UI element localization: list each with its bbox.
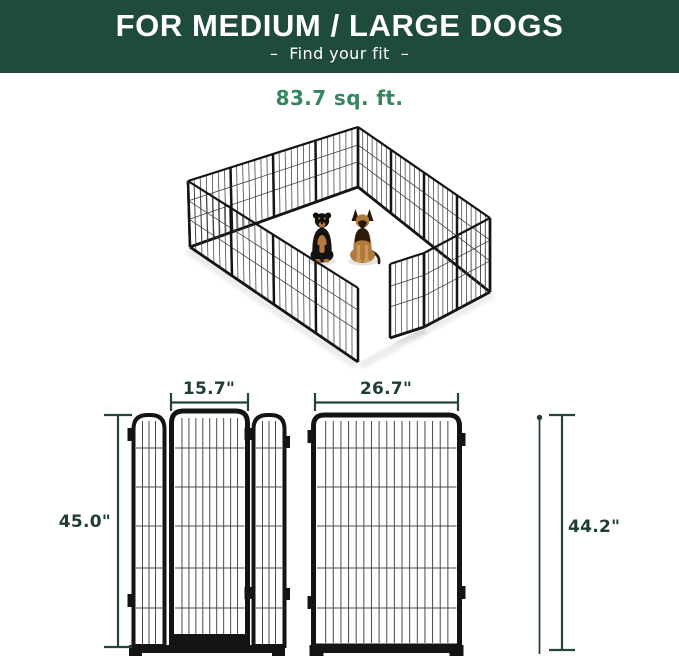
ground-stake-illustration	[537, 415, 542, 654]
regular-panel-height-label: 44.2"	[568, 519, 620, 536]
headline: FOR MEDIUM / LARGE DOGS	[116, 10, 564, 43]
subheadline: – Find your fit –	[270, 44, 409, 63]
area-size-label: 83.7 sq. ft.	[0, 86, 679, 110]
door-panel-height-label: 45.0"	[59, 514, 111, 531]
playpen-isometric-illustration	[140, 115, 540, 380]
door-panel-diagram	[128, 411, 291, 656]
regular-panel-width-label: 26.7"	[360, 381, 412, 398]
door-width-label: 15.7"	[183, 381, 235, 398]
regular-panel-diagram	[308, 415, 466, 656]
product-infographic: FOR MEDIUM / LARGE DOGS – Find your fit …	[0, 0, 679, 656]
header-banner: FOR MEDIUM / LARGE DOGS – Find your fit …	[0, 0, 679, 73]
